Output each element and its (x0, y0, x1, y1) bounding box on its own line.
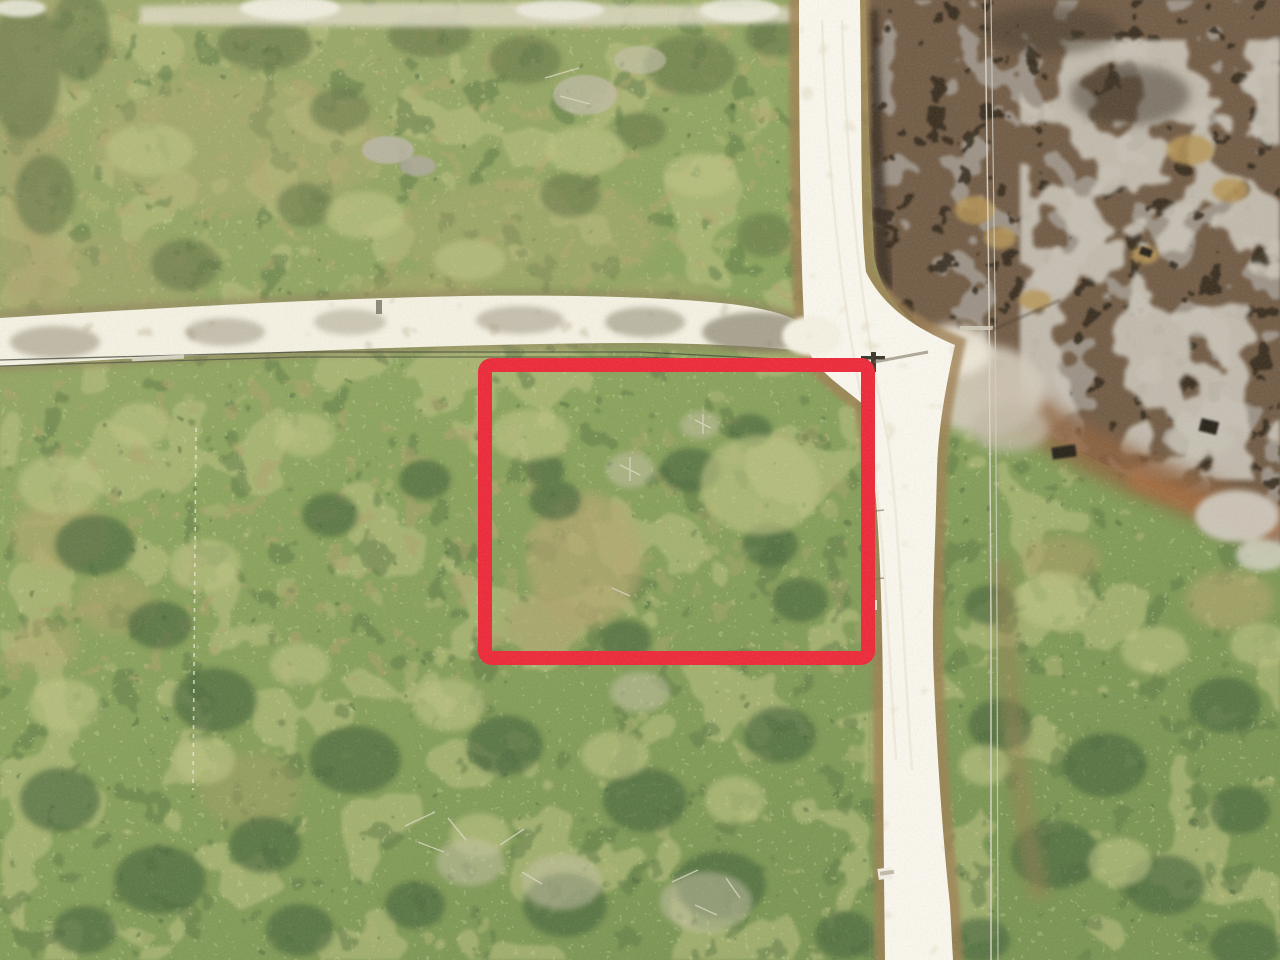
aerial-photo (0, 0, 1280, 960)
photo-grain (0, 0, 1280, 960)
